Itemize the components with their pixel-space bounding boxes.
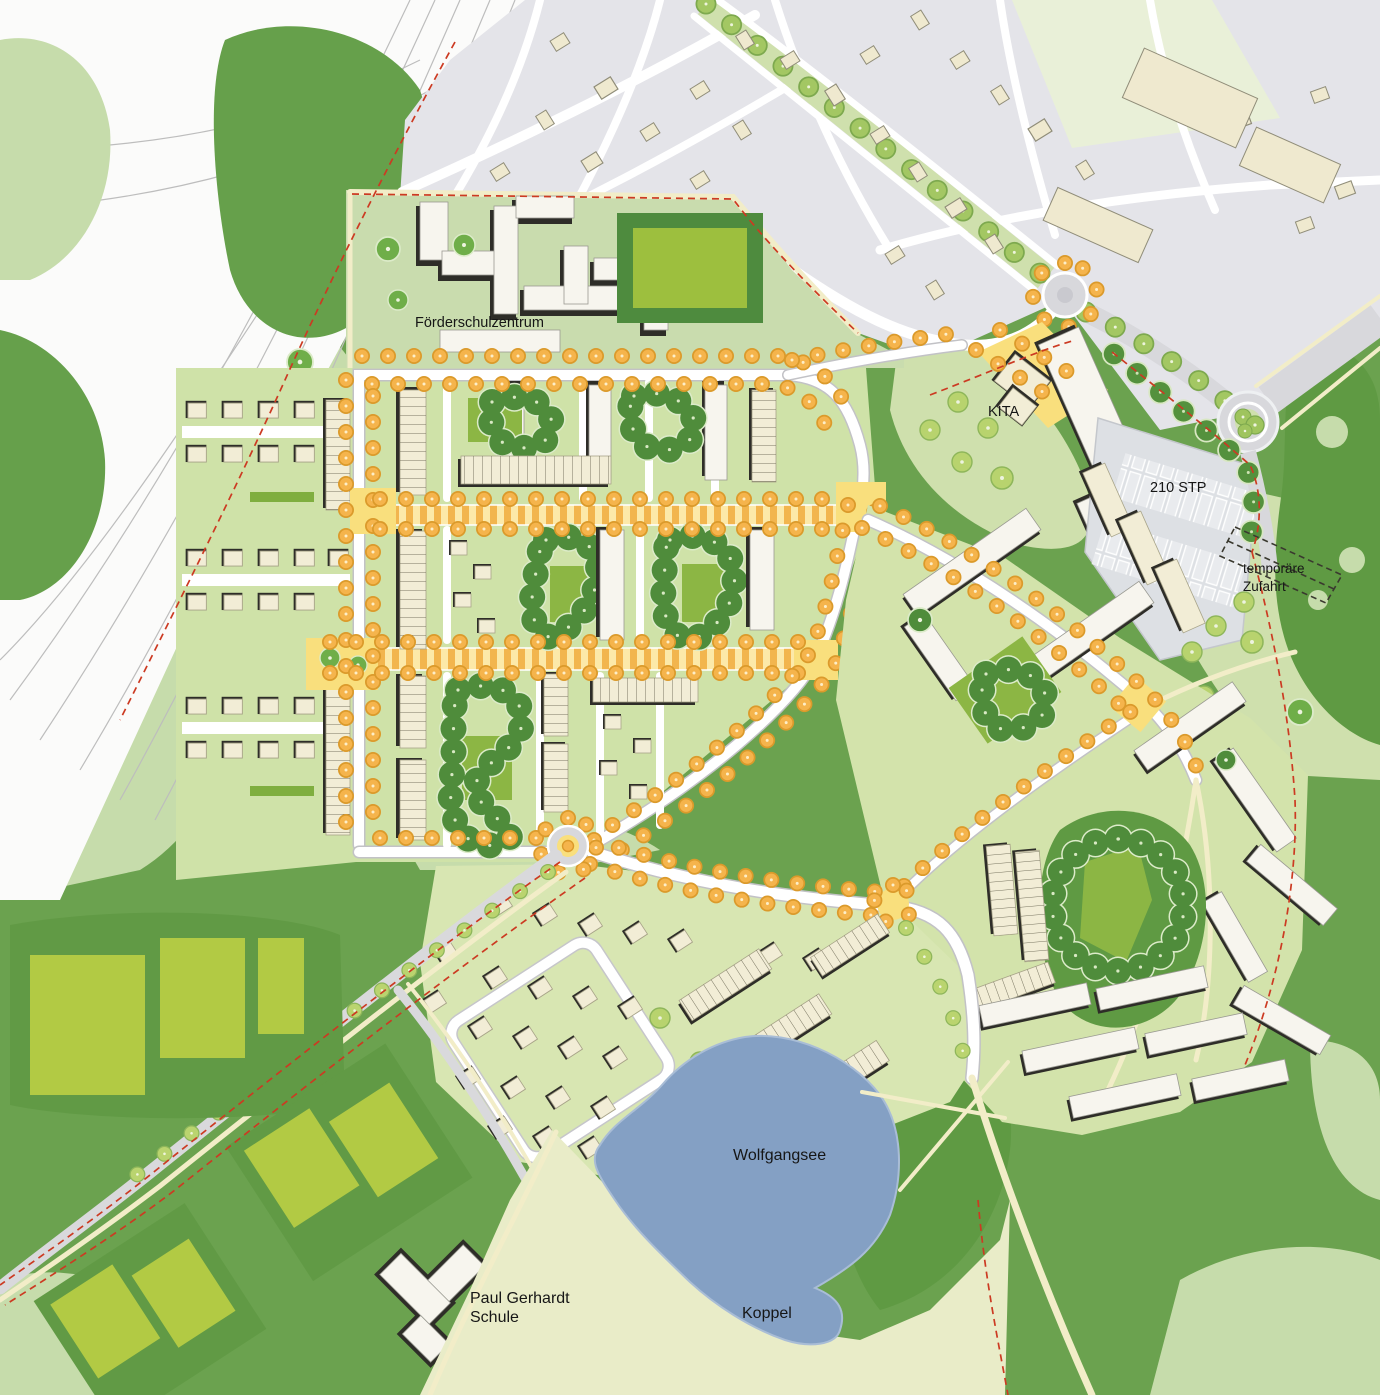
label-temp-zufahrt-2: Zufahrt	[1243, 579, 1286, 594]
label-foerderschulzentrum: Förderschulzentrum	[415, 315, 544, 331]
school-sports-pitch	[617, 213, 763, 323]
masterplan-map: Förderschulzentrum KITA 210 STP temporär…	[0, 0, 1380, 1395]
roundabout-north	[1033, 263, 1097, 327]
label-temp-zufahrt-1: temporäre	[1243, 561, 1305, 576]
label-wolfgangsee: Wolfgangsee	[733, 1147, 826, 1164]
label-paul-gerhardt-1: Paul Gerhardt	[470, 1290, 570, 1307]
label-kita: KITA	[988, 404, 1019, 420]
label-paul-gerhardt-2: Schule	[470, 1309, 519, 1326]
label-210stp: 210 STP	[1150, 480, 1206, 496]
label-koppel: Koppel	[742, 1305, 792, 1322]
masterplan-svg: Förderschulzentrum KITA 210 STP temporär…	[0, 0, 1380, 1395]
